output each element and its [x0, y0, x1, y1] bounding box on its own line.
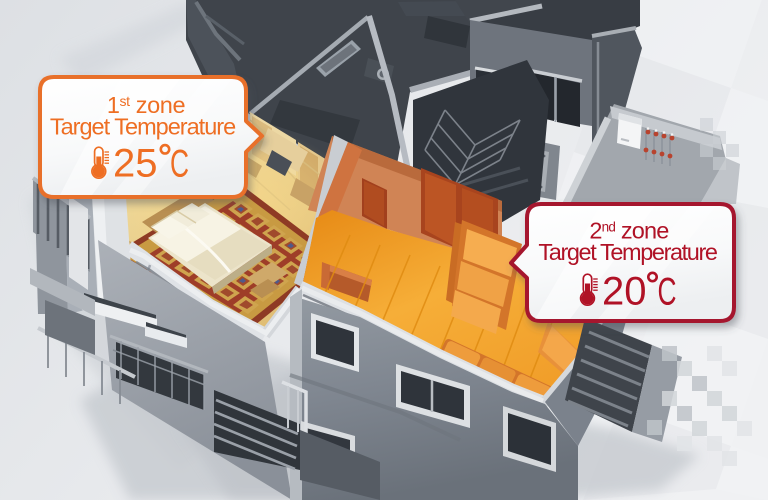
svg-text:C: C — [170, 143, 189, 186]
svg-text:25: 25 — [113, 142, 158, 186]
svg-text:20: 20 — [602, 270, 647, 314]
svg-text:Target Temperature: Target Temperature — [50, 114, 236, 140]
svg-text:Target Temperature: Target Temperature — [538, 239, 717, 265]
svg-text:C: C — [658, 271, 677, 314]
